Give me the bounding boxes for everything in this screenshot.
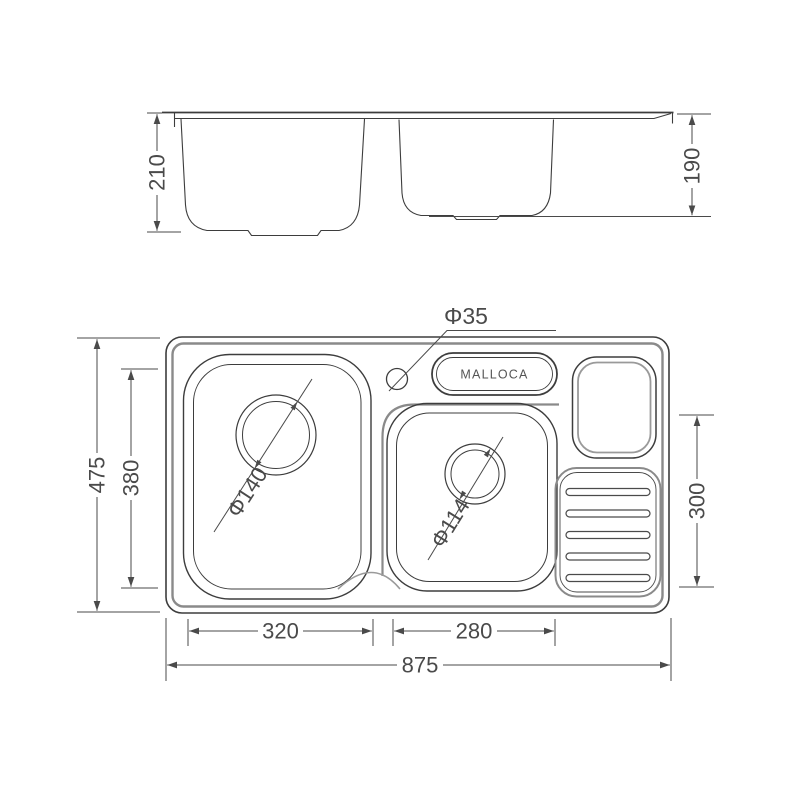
left-bowl-depth-label: 210 [145, 154, 170, 191]
right-bowl-outer [387, 404, 557, 592]
right-drain: Φ114 [426, 437, 505, 560]
right-section-height-label: 300 [685, 483, 710, 520]
right-drain-label: Φ114 [426, 494, 475, 552]
overall-length-label: 875 [402, 653, 439, 678]
drainboard-slot [566, 553, 650, 560]
dim-left-bowl-length: 320 [188, 619, 373, 646]
left-bowl-profile [181, 119, 365, 236]
drawing-svg: 210 190 MALLOCA [0, 0, 800, 800]
faucet-hole-label: Φ35 [444, 303, 488, 329]
rim-under-line [175, 114, 672, 119]
sink-outer-edge [166, 337, 669, 613]
left-bowl-inner [194, 365, 362, 590]
bowl-divider-curve [338, 573, 400, 590]
dim-overall-length: 875 [166, 618, 671, 681]
diameter-arrow [484, 448, 491, 457]
dim-right-bowl-length: 280 [393, 619, 555, 646]
brand-plate: MALLOCA [432, 353, 557, 395]
diameter-arrow [291, 402, 298, 411]
accessory-basin-outer [573, 357, 657, 458]
sink-technical-drawing: 210 190 MALLOCA [0, 0, 800, 800]
drainboard-slot [566, 489, 650, 496]
drainboard [556, 468, 661, 597]
right-drain-inner [451, 450, 499, 498]
drainboard-slot [566, 575, 650, 582]
right-bowl-profile [399, 120, 554, 220]
drainboard-outer [556, 468, 661, 597]
plan-view: MALLOCA Φ35 Φ140 [77, 303, 714, 681]
dim-right-bowl-depth: 190 [429, 114, 711, 217]
brand-label: MALLOCA [460, 368, 528, 382]
right-bowl-length-label: 280 [456, 619, 493, 644]
left-bowl-inner-width-label: 380 [119, 460, 144, 497]
left-drain-label: Φ140 [222, 463, 273, 522]
dim-left-bowl-inner-width: 380 [119, 369, 158, 588]
drainboard-slot [566, 510, 650, 517]
left-bowl-length-label: 320 [262, 619, 299, 644]
side-elevation-view: 210 190 [145, 113, 711, 236]
accessory-basin-inner [578, 363, 651, 453]
dim-left-bowl-depth: 210 [145, 113, 181, 232]
left-drain: Φ140 [214, 379, 316, 532]
leader-line [389, 331, 556, 392]
left-bowl-outer [184, 355, 372, 600]
dim-right-section-height: 300 [679, 415, 714, 587]
right-bowl-inner [397, 413, 548, 582]
drainboard-slot [566, 532, 650, 539]
right-bowl-depth-label: 190 [680, 148, 705, 185]
overall-width-label: 475 [85, 457, 110, 494]
faucet-hole [387, 369, 408, 390]
